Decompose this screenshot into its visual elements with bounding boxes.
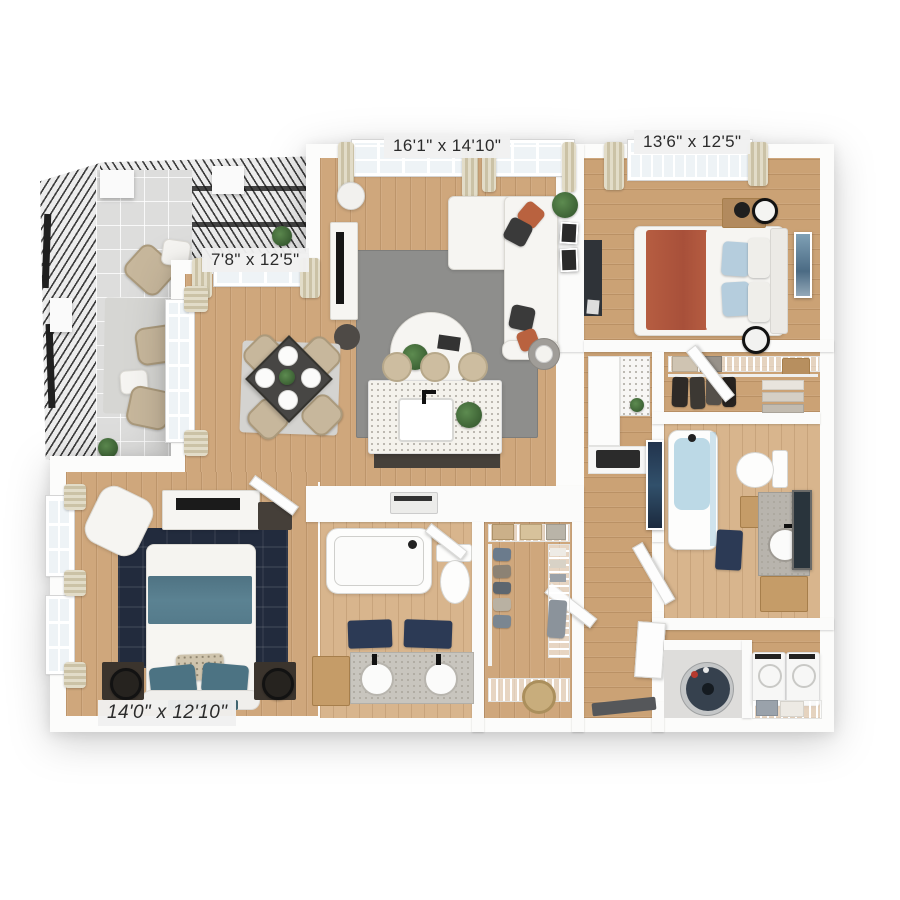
bath2-cabinet: [760, 576, 808, 612]
vanity-sink: [360, 662, 394, 696]
tv-console: [330, 222, 358, 320]
dresser-marble: [162, 490, 260, 530]
dimension-label-living-room: 16'1" x 14'10": [384, 134, 510, 158]
dryer-controls: [789, 654, 815, 659]
arc-lamp: [752, 198, 778, 224]
hanging-clothes: [493, 615, 511, 629]
drum-lamp: [262, 668, 294, 700]
wall-closet1-hall: [572, 522, 584, 732]
curtain: [64, 570, 86, 596]
folded-linens: [762, 392, 804, 402]
curtain: [184, 430, 208, 456]
heater-closet-wall: [664, 640, 752, 650]
folded-linens: [762, 404, 804, 413]
bed1-teal-throw: [148, 576, 252, 624]
bar-stool: [420, 352, 450, 382]
folded-linens: [550, 560, 566, 568]
dinner-plate: [301, 368, 321, 388]
bath-mat: [715, 529, 743, 570]
heater-valve-red: [691, 671, 698, 678]
storage-basket: [492, 524, 514, 540]
hanging-clothes: [493, 548, 511, 562]
dimension-label-bedroom2: 13'6" x 12'5": [634, 130, 750, 154]
curtain: [184, 286, 208, 312]
dimension-label-bedroom1: 14'0" x 12'10": [98, 700, 236, 726]
toilet-tank: [772, 450, 788, 488]
drum-lamp: [110, 668, 142, 700]
laundry-door: [634, 621, 666, 679]
folded-linens: [550, 574, 566, 582]
bed2-headboard: [770, 228, 788, 334]
curtain: [562, 142, 576, 192]
storage-box: [546, 524, 566, 540]
heater-valve-white: [703, 667, 709, 673]
hanging-clothes: [689, 377, 705, 410]
floor-plan: 16'1" x 14'10" 13'6" x 12'5" 7'8" x 12'5…: [0, 0, 900, 900]
curtain: [604, 142, 624, 190]
curtain: [748, 142, 768, 186]
curtain: [64, 484, 86, 510]
bed1-duvet-top: [150, 548, 250, 578]
wall-frame: [559, 222, 578, 245]
bedroom2-wall-art: [794, 232, 812, 298]
hanging-clothes: [493, 582, 511, 594]
towels-white: [780, 701, 804, 717]
dresser-tv: [176, 498, 240, 510]
wall-frame: [560, 248, 579, 273]
washer-controls: [755, 654, 781, 659]
nook-plant: [630, 398, 644, 412]
vanity-faucet: [372, 654, 377, 665]
bed2-pillow-blue: [721, 241, 751, 277]
folded-linens: [762, 380, 804, 390]
water-heater-cap: [702, 683, 714, 695]
bath2-shelf: [740, 496, 760, 528]
bath-mat: [404, 619, 453, 649]
bar-stool: [382, 352, 412, 382]
hanging-clothes: [493, 598, 511, 611]
cooktop: [596, 450, 640, 468]
bath-mat: [348, 619, 393, 649]
tub-faucet: [408, 540, 417, 549]
hanging-clothes: [547, 599, 568, 638]
wall-bath2-laundry: [652, 618, 834, 630]
corner-plant: [552, 192, 578, 218]
towels-gray: [756, 700, 778, 716]
washer-lid: [758, 664, 782, 688]
nightstand-lamp: [734, 202, 750, 218]
arc-lamp: [742, 326, 770, 354]
bed2-pillow-white: [748, 238, 770, 278]
pantry-cabinet: [588, 356, 620, 446]
papers: [586, 300, 599, 315]
hanging-clothes: [671, 377, 688, 408]
folded-linens: [550, 548, 566, 556]
tub-faucet: [688, 434, 696, 442]
toilet-bowl: [440, 560, 470, 604]
heater-closet-wall: [742, 640, 752, 718]
dryer-door: [792, 664, 816, 688]
vanity-sink: [424, 662, 458, 696]
wall-closet2-south: [652, 412, 820, 424]
bed2-pillow-white: [748, 282, 770, 322]
hallway-wall-art: [646, 440, 664, 530]
dimension-label-patio-dining: 7'8" x 12'5": [202, 248, 309, 272]
hanging-clothes: [493, 565, 511, 579]
floor-lamp: [337, 182, 365, 210]
wall-kitchen-half: [306, 486, 584, 522]
books: [437, 335, 461, 352]
toilet-bowl: [736, 452, 774, 488]
dinner-plate: [278, 346, 298, 366]
island-plant: [456, 402, 482, 428]
storage-basket: [520, 524, 542, 540]
dinner-plate: [255, 368, 275, 388]
wall-bedroom2-south: [584, 340, 834, 352]
vanity-faucet: [436, 654, 441, 665]
curtain: [64, 662, 86, 688]
glass-screen: [710, 432, 716, 546]
bathroom-cabinet: [312, 656, 350, 706]
table-lamp: [535, 345, 553, 363]
tub-water: [674, 438, 710, 510]
dinner-plate: [278, 390, 298, 410]
kitchen-faucet: [422, 390, 436, 394]
closet1-rod: [488, 544, 492, 666]
counter-appliance-top: [394, 496, 432, 501]
round-basket: [522, 680, 556, 714]
bed2-pillow-blue: [721, 281, 751, 316]
table-centerpiece: [279, 369, 295, 385]
bed2-terracotta-throw: [646, 230, 708, 330]
bar-stool: [458, 352, 488, 382]
kitchen-sink: [398, 398, 454, 442]
tv: [336, 232, 344, 304]
dining-side-window: [166, 300, 194, 442]
leaning-mirror: [792, 490, 812, 570]
